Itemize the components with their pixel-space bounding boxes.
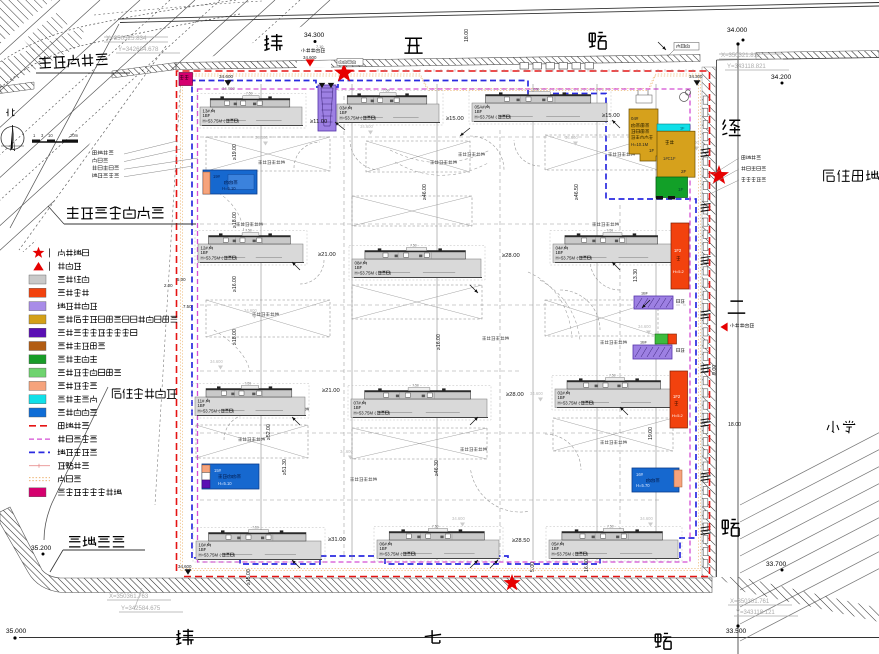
svg-text:H=53.75M: H=53.75M [198,409,218,414]
svg-text:1BF: 1BF [355,265,363,270]
svg-text:2.00: 2.00 [164,283,173,288]
svg-text:19#: 19# [213,174,221,179]
svg-text:Y=343118.121: Y=343118.121 [736,610,775,616]
svg-text:7.10: 7.10 [316,45,323,49]
svg-text:1F: 1F [678,187,684,192]
svg-text:7.50: 7.50 [609,373,616,377]
svg-text:H=53.75M: H=53.75M [380,552,400,557]
svg-text:34.200: 34.200 [771,74,792,81]
svg-text:Y=342684.678: Y=342684.678 [118,46,159,53]
svg-text:2F: 2F [681,169,687,174]
svg-text:20m: 20m [70,133,79,138]
svg-text:34.600: 34.600 [210,359,223,364]
svg-text:33.500: 33.500 [726,628,747,635]
svg-text:15#: 15# [214,468,222,473]
svg-text:≥31.00: ≥31.00 [328,537,346,543]
svg-text:34.300: 34.300 [689,74,703,79]
svg-text:≥15.00: ≥15.00 [602,113,620,119]
svg-text:H=10.1M: H=10.1M [631,142,649,147]
svg-text:1BF: 1BF [354,405,362,410]
svg-text:≥28.00: ≥28.00 [502,253,520,259]
svg-text:H=5.2: H=5.2 [672,413,684,418]
svg-text:10: 10 [48,133,53,138]
svg-text:1BF: 1BF [199,547,207,552]
svg-text:7.50: 7.50 [383,88,390,92]
svg-text:H=53.75M: H=53.75M [475,115,495,120]
svg-text:1BF: 1BF [475,109,483,114]
svg-text:H=53.75M: H=53.75M [199,553,219,558]
svg-text:≥46.00: ≥46.00 [422,184,428,200]
svg-text:H=5.10: H=5.10 [222,186,236,191]
svg-text:H=53.75M: H=53.75M [552,552,572,557]
svg-text:19.00: 19.00 [648,427,654,440]
svg-text:7.50: 7.50 [252,525,259,529]
svg-text:7.50: 7.50 [412,383,419,387]
svg-text:35.000: 35.000 [6,628,27,635]
svg-text:5.00: 5.00 [530,562,536,572]
svg-text:7.50: 7.50 [183,304,192,309]
svg-text:9.00: 9.00 [712,365,718,375]
svg-text:≥52.00: ≥52.00 [266,424,272,440]
svg-text:H=53.75M: H=53.75M [558,401,578,406]
svg-text:7.50: 7.50 [410,243,417,247]
svg-text:Y=343118.821: Y=343118.821 [727,64,766,70]
svg-text:1F2: 1F2 [673,394,681,399]
svg-text:≥19.00: ≥19.00 [232,144,238,160]
svg-text:H=5.70: H=5.70 [636,483,650,488]
svg-text:1BF: 1BF [640,341,648,345]
svg-text:H=53.75M: H=53.75M [201,256,221,261]
svg-text:7.50: 7.50 [245,381,252,385]
svg-text:1BF: 1BF [556,250,564,255]
svg-text:34.600: 34.600 [244,308,257,313]
svg-text:34.600: 34.600 [452,516,465,521]
svg-text:13.30: 13.30 [633,269,639,282]
svg-text:1BF: 1BF [558,395,566,400]
svg-text:≥46.30: ≥46.30 [434,460,440,476]
svg-text:7.50: 7.50 [607,524,614,528]
svg-text:≥28.50: ≥28.50 [512,538,530,544]
svg-text:H=53.75M: H=53.75M [340,116,360,121]
svg-text:X=350301.761: X=350301.761 [730,599,770,605]
svg-text:5.00: 5.00 [177,277,186,282]
svg-text:Y=342584.675: Y=342584.675 [121,606,161,612]
svg-text:1BF: 1BF [552,546,560,551]
svg-text:34.600: 34.600 [640,516,653,521]
svg-text:18.00: 18.00 [728,422,741,428]
svg-text:34.600: 34.600 [219,74,233,79]
svg-text:≥51.30: ≥51.30 [282,459,288,475]
svg-text:≥16.00: ≥16.00 [232,276,238,292]
svg-text:1BF: 1BF [198,403,206,408]
svg-text:≥28.00: ≥28.00 [506,392,524,398]
svg-text:1BF: 1BF [641,292,649,296]
svg-text:1BF: 1BF [203,113,211,118]
svg-text:04#: 04# [631,116,639,121]
svg-text:≥21.00: ≥21.00 [322,388,340,394]
svg-text:34.600: 34.600 [178,564,192,569]
svg-text:7.50: 7.50 [607,228,614,232]
svg-text:H=53.75M: H=53.75M [556,256,576,261]
svg-text:X=350361.763: X=350361.763 [109,594,149,600]
svg-text:35.200: 35.200 [31,545,52,552]
svg-text:H=5.10: H=5.10 [218,481,232,486]
svg-text:34.600: 34.600 [360,124,373,129]
svg-text:7.50: 7.50 [533,87,540,91]
svg-text:34.300: 34.300 [304,32,325,39]
svg-text:1F2: 1F2 [674,248,682,253]
svg-text:≥21.00: ≥21.00 [318,252,336,258]
svg-text:34.600: 34.600 [303,55,317,60]
svg-text:H=53.75M: H=53.75M [203,119,223,124]
svg-text:X=350525.834: X=350525.834 [106,35,147,42]
svg-text:≥16.00: ≥16.00 [436,334,442,350]
svg-text:H=53.75M: H=53.75M [355,271,375,276]
svg-text:7.50: 7.50 [432,524,439,528]
svg-text:H=53.75M: H=53.75M [354,411,374,416]
svg-text:7.50: 7.50 [245,228,252,232]
svg-text:7.50: 7.50 [246,91,253,95]
svg-text:≥18.00: ≥18.00 [232,329,238,345]
svg-text:34.600: 34.600 [340,449,353,454]
svg-text:1BF: 1BF [340,110,348,115]
svg-text:34.600: 34.600 [222,86,235,91]
svg-text:34.000: 34.000 [727,27,748,34]
svg-text:34.600: 34.600 [255,135,268,140]
svg-text:1F: 1F [680,127,685,131]
svg-text:16.00: 16.00 [584,559,590,572]
svg-text:34.600: 34.600 [530,391,543,396]
svg-text:≥18.00: ≥18.00 [232,212,238,228]
svg-text:≥15.00: ≥15.00 [446,116,464,122]
svg-text:1BF: 1BF [380,546,388,551]
svg-text:≥15.00: ≥15.00 [246,569,252,585]
svg-text:18.00: 18.00 [464,29,470,42]
svg-text:33.700: 33.700 [766,561,787,568]
svg-text:34.600: 34.600 [565,135,578,140]
svg-text:34.600: 34.600 [638,324,651,329]
svg-text:1BF: 1BF [201,250,209,255]
svg-text:≥46.50: ≥46.50 [574,184,580,200]
svg-text:H=5.2: H=5.2 [673,269,685,274]
svg-text:1F: 1F [649,148,654,153]
svg-text:1#C1F: 1#C1F [663,156,676,161]
svg-text:16#: 16# [636,472,644,477]
svg-text:≥11.00: ≥11.00 [310,119,327,125]
